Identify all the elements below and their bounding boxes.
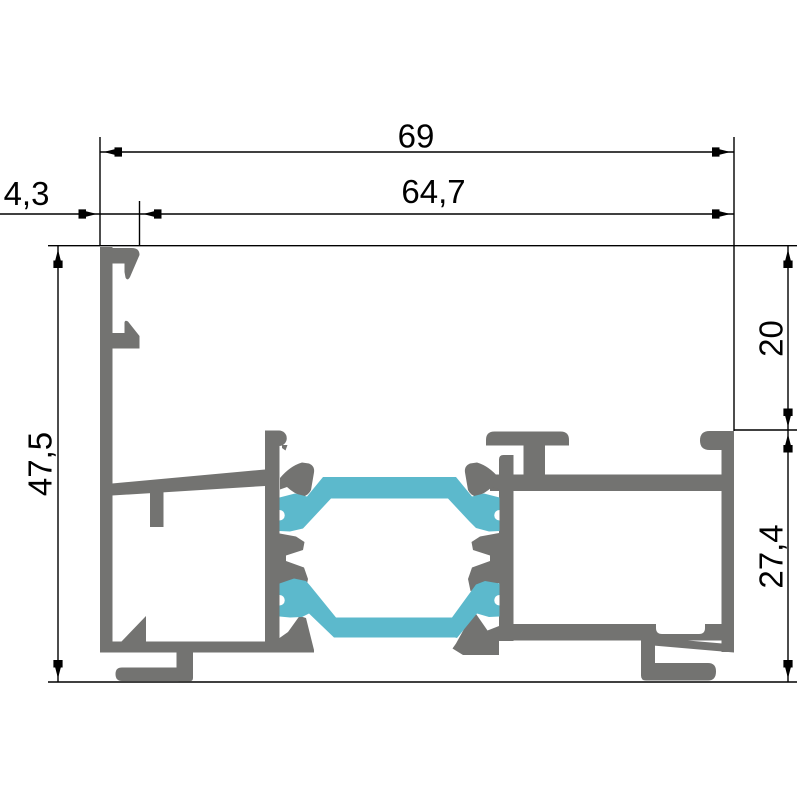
- svg-text:47,5: 47,5: [22, 432, 59, 496]
- svg-text:69: 69: [398, 118, 435, 155]
- svg-text:4,3: 4,3: [4, 175, 50, 212]
- svg-text:64,7: 64,7: [401, 173, 465, 210]
- svg-text:27,4: 27,4: [753, 524, 790, 588]
- svg-text:20: 20: [753, 320, 790, 357]
